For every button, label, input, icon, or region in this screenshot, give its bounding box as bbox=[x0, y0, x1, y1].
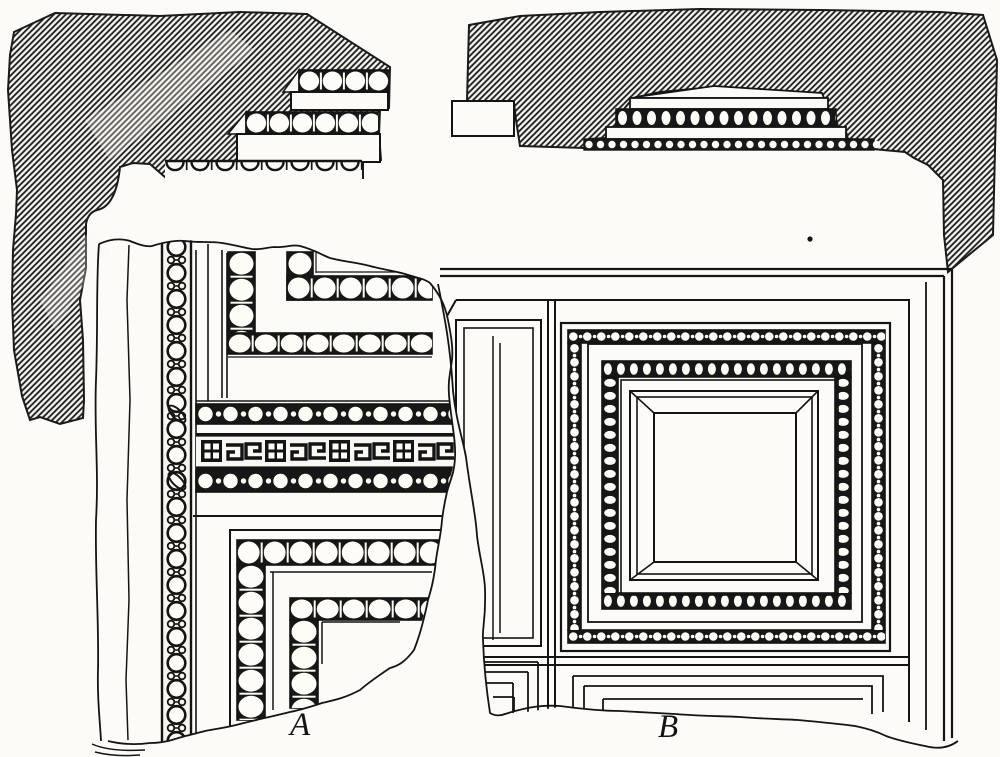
svg-text:B: B bbox=[658, 709, 678, 745]
svg-text:A: A bbox=[288, 707, 311, 743]
